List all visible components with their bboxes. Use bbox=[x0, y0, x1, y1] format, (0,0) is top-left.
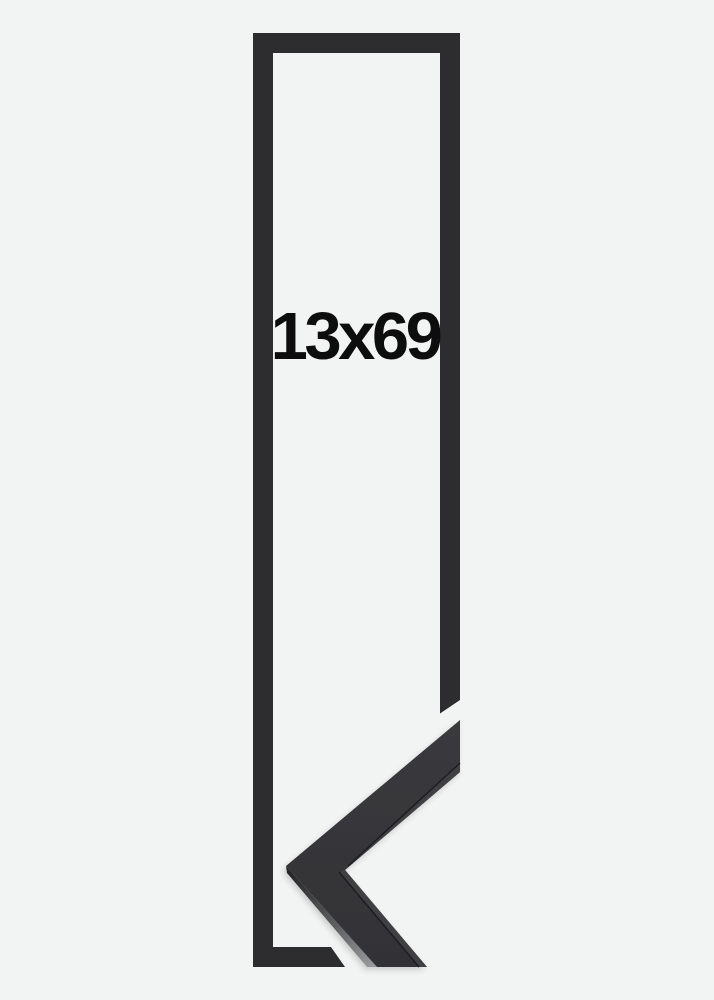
size-label: 13x69 bbox=[253, 302, 457, 372]
frame-outline-top-bar bbox=[253, 33, 460, 53]
frame-outline-left-bar bbox=[253, 33, 273, 967]
frame-product-image: 13x69 bbox=[0, 0, 714, 1000]
frame-illustration bbox=[0, 0, 714, 1000]
frame-outline-bottom-bar bbox=[253, 947, 345, 967]
frame-outline-right-bar bbox=[440, 33, 460, 714]
